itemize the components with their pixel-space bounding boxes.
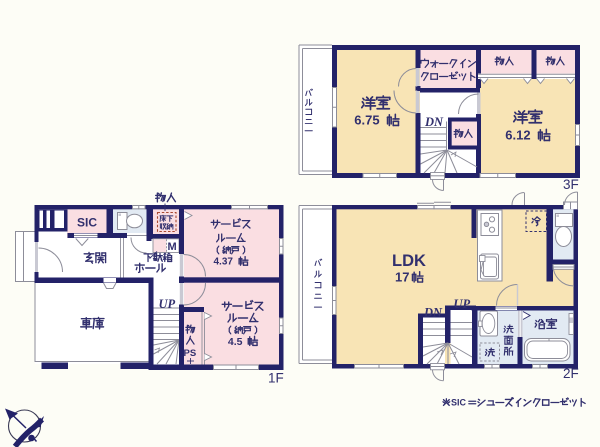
svg-text:DN: DN — [423, 306, 443, 320]
svg-text:6.12: 6.12 — [505, 128, 530, 143]
svg-text:17: 17 — [395, 270, 409, 285]
svg-text:SIC: SIC — [77, 216, 97, 230]
svg-text:DN: DN — [424, 115, 444, 129]
svg-text:PS: PS — [184, 348, 197, 359]
svg-text:6.75: 6.75 — [354, 113, 379, 128]
svg-text:LDK: LDK — [392, 252, 426, 270]
svg-text:2F: 2F — [563, 366, 579, 381]
svg-text:M: M — [168, 241, 177, 253]
svg-text:1F: 1F — [268, 371, 284, 386]
svg-text:4.37: 4.37 — [214, 257, 234, 268]
svg-text:3F: 3F — [563, 177, 579, 192]
svg-text:4.5: 4.5 — [228, 336, 243, 348]
svg-text:UP: UP — [454, 297, 471, 311]
svg-text:SIC: SIC — [451, 398, 467, 408]
svg-text:UP: UP — [159, 297, 176, 311]
